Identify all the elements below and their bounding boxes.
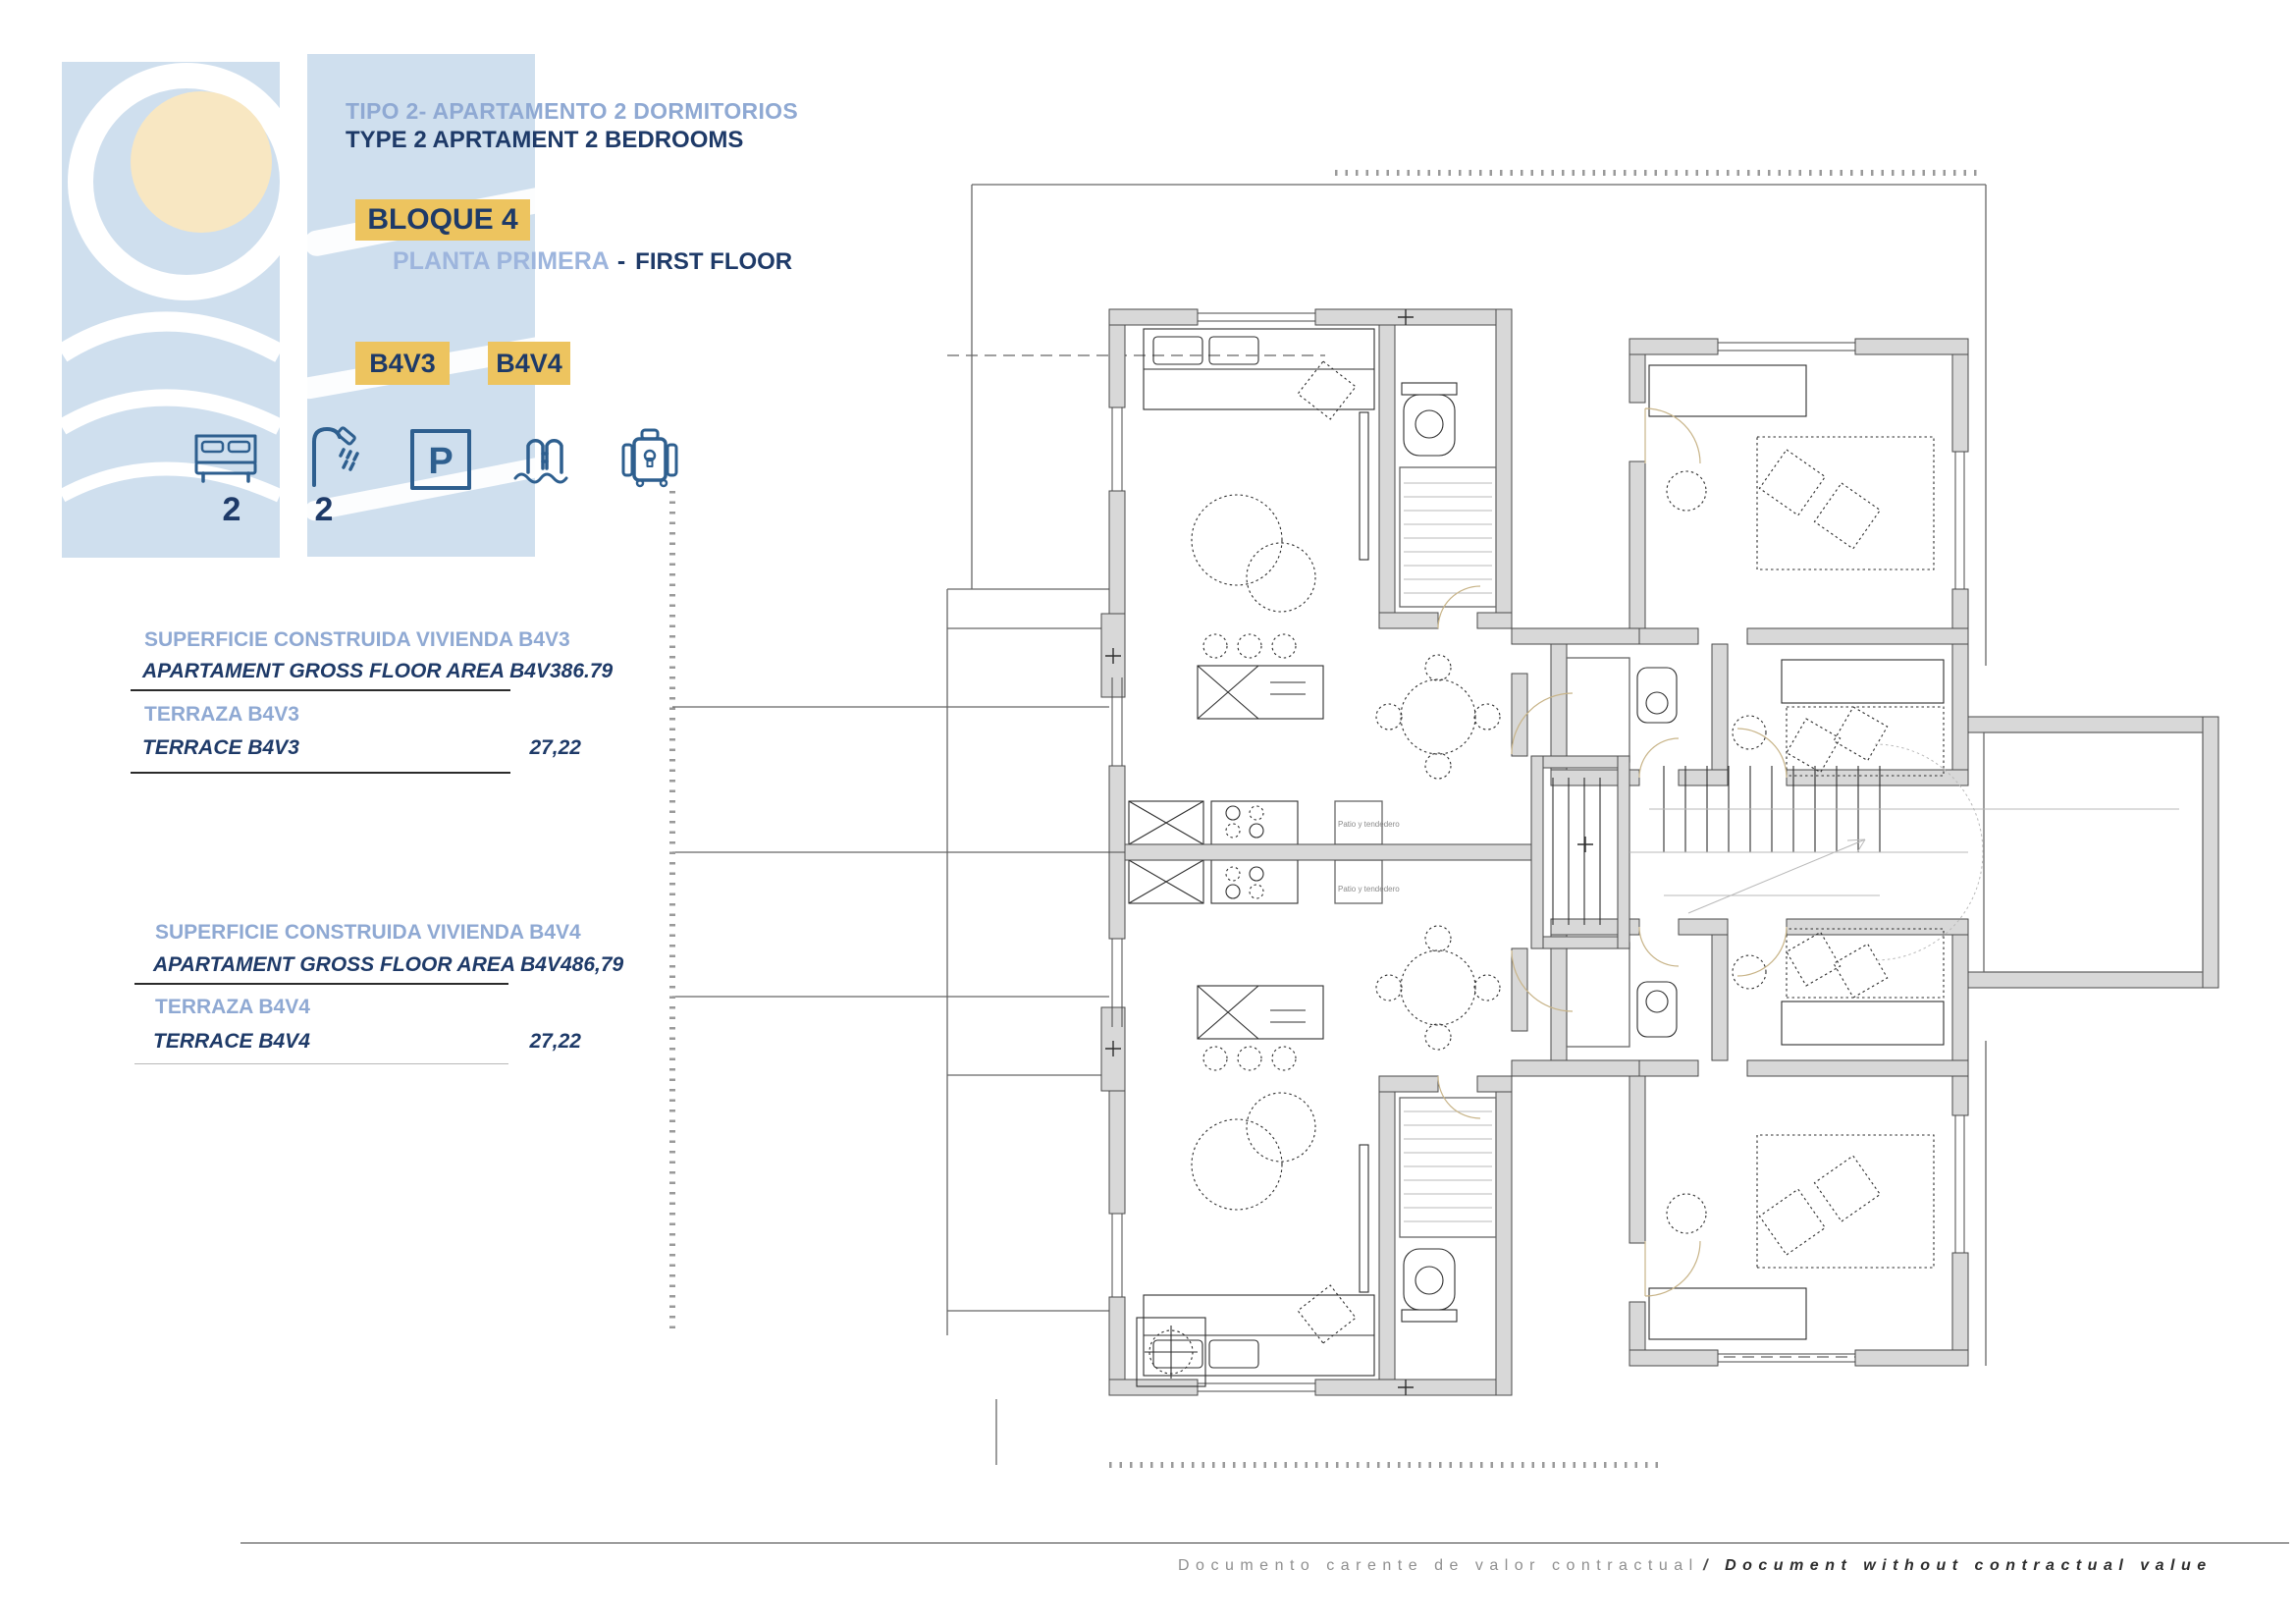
table-row-label-en: TERRACE B4V3 [142, 736, 299, 760]
bathrooms-count: 2 [304, 491, 344, 529]
building-core [1125, 717, 2218, 988]
footer-separator: / [1703, 1557, 1725, 1574]
terrace-boundaries [672, 173, 1986, 1465]
sun-icon [131, 91, 272, 233]
table-divider [134, 983, 508, 985]
table-row-value: 86.79 [561, 660, 614, 683]
table-row-label-en: APARTAMENT GROSS FLOOR AREA B4V3 [142, 660, 561, 683]
table-row-label-en: APARTAMENT GROSS FLOOR AREA B4V4 [153, 953, 572, 977]
footer-disclaimer-es: Documento carente de valor contractual [1178, 1557, 1699, 1574]
unit-badge-b4v4: B4V4 [488, 342, 570, 385]
svg-text:P: P [428, 441, 453, 482]
footer-disclaimer: Documento carente de valor contractual /… [1178, 1557, 2213, 1575]
floor-plan-drawing: Patio y tendedero Patio y tendedero [648, 79, 2296, 1502]
brochure-page: TIPO 2- APARTAMENTO 2 DORMITORIOS TYPE 2… [0, 0, 2296, 1624]
bedrooms-count: 2 [212, 491, 251, 529]
table-divider [131, 772, 510, 774]
table-row-value: 27,22 [529, 736, 581, 760]
unit-badge-b4v3: B4V3 [355, 342, 450, 385]
table-row-label-es: SUPERFICIE CONSTRUIDA VIVIENDA B4V4 [155, 921, 581, 945]
footer-divider [240, 1543, 2289, 1543]
shower-icon [308, 424, 361, 487]
table-row-label-es: TERRAZA B4V4 [155, 996, 310, 1019]
footer-disclaimer-en: Document without contractual value [1725, 1557, 2213, 1574]
table-divider [134, 1063, 508, 1064]
floor-name-es: PLANTA PRIMERA [393, 247, 610, 275]
table-row-value: 86,79 [572, 953, 624, 977]
table-row-label-en: TERRACE B4V4 [153, 1030, 310, 1054]
floor-dash: - [617, 247, 625, 275]
block-badge: BLOQUE 4 [355, 199, 530, 241]
table-row-value: 27,22 [529, 1030, 581, 1054]
table-row-label-es: SUPERFICIE CONSTRUIDA VIVIENDA B4V3 [144, 628, 570, 652]
patio-label: Patio y tendedero [1338, 820, 1400, 829]
patio-label: Patio y tendedero [1338, 885, 1400, 893]
bed-icon [194, 434, 257, 483]
table-row-label-es: TERRAZA B4V3 [144, 703, 299, 727]
pool-icon [512, 429, 575, 488]
table-divider [131, 689, 510, 691]
parking-icon: P [410, 429, 471, 490]
